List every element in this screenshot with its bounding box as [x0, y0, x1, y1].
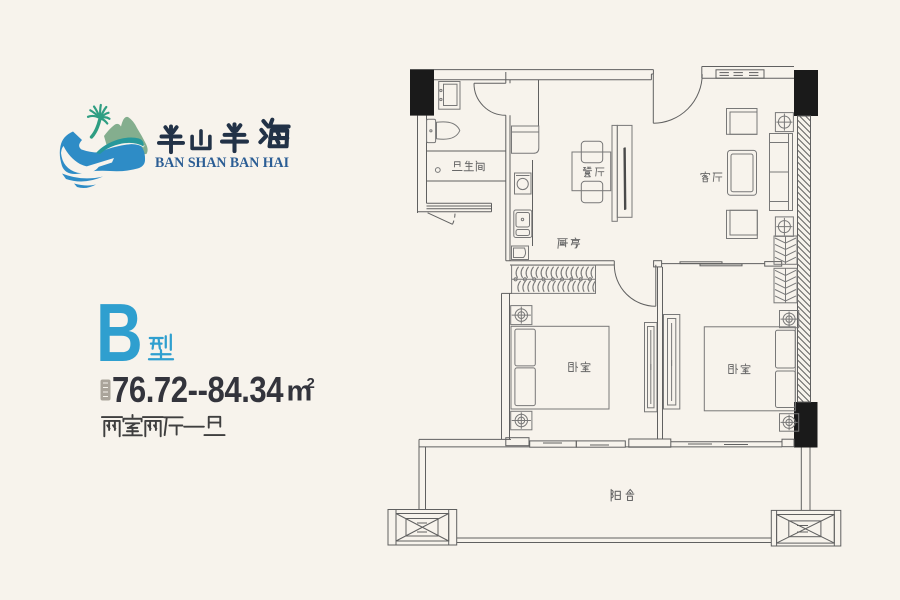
- svg-text:2: 2: [307, 375, 315, 392]
- svg-text:B: B: [96, 286, 143, 379]
- svg-text:76.72--84.34: 76.72--84.34: [112, 370, 284, 411]
- svg-text:BAN SHAN BAN HAI: BAN SHAN BAN HAI: [155, 155, 289, 171]
